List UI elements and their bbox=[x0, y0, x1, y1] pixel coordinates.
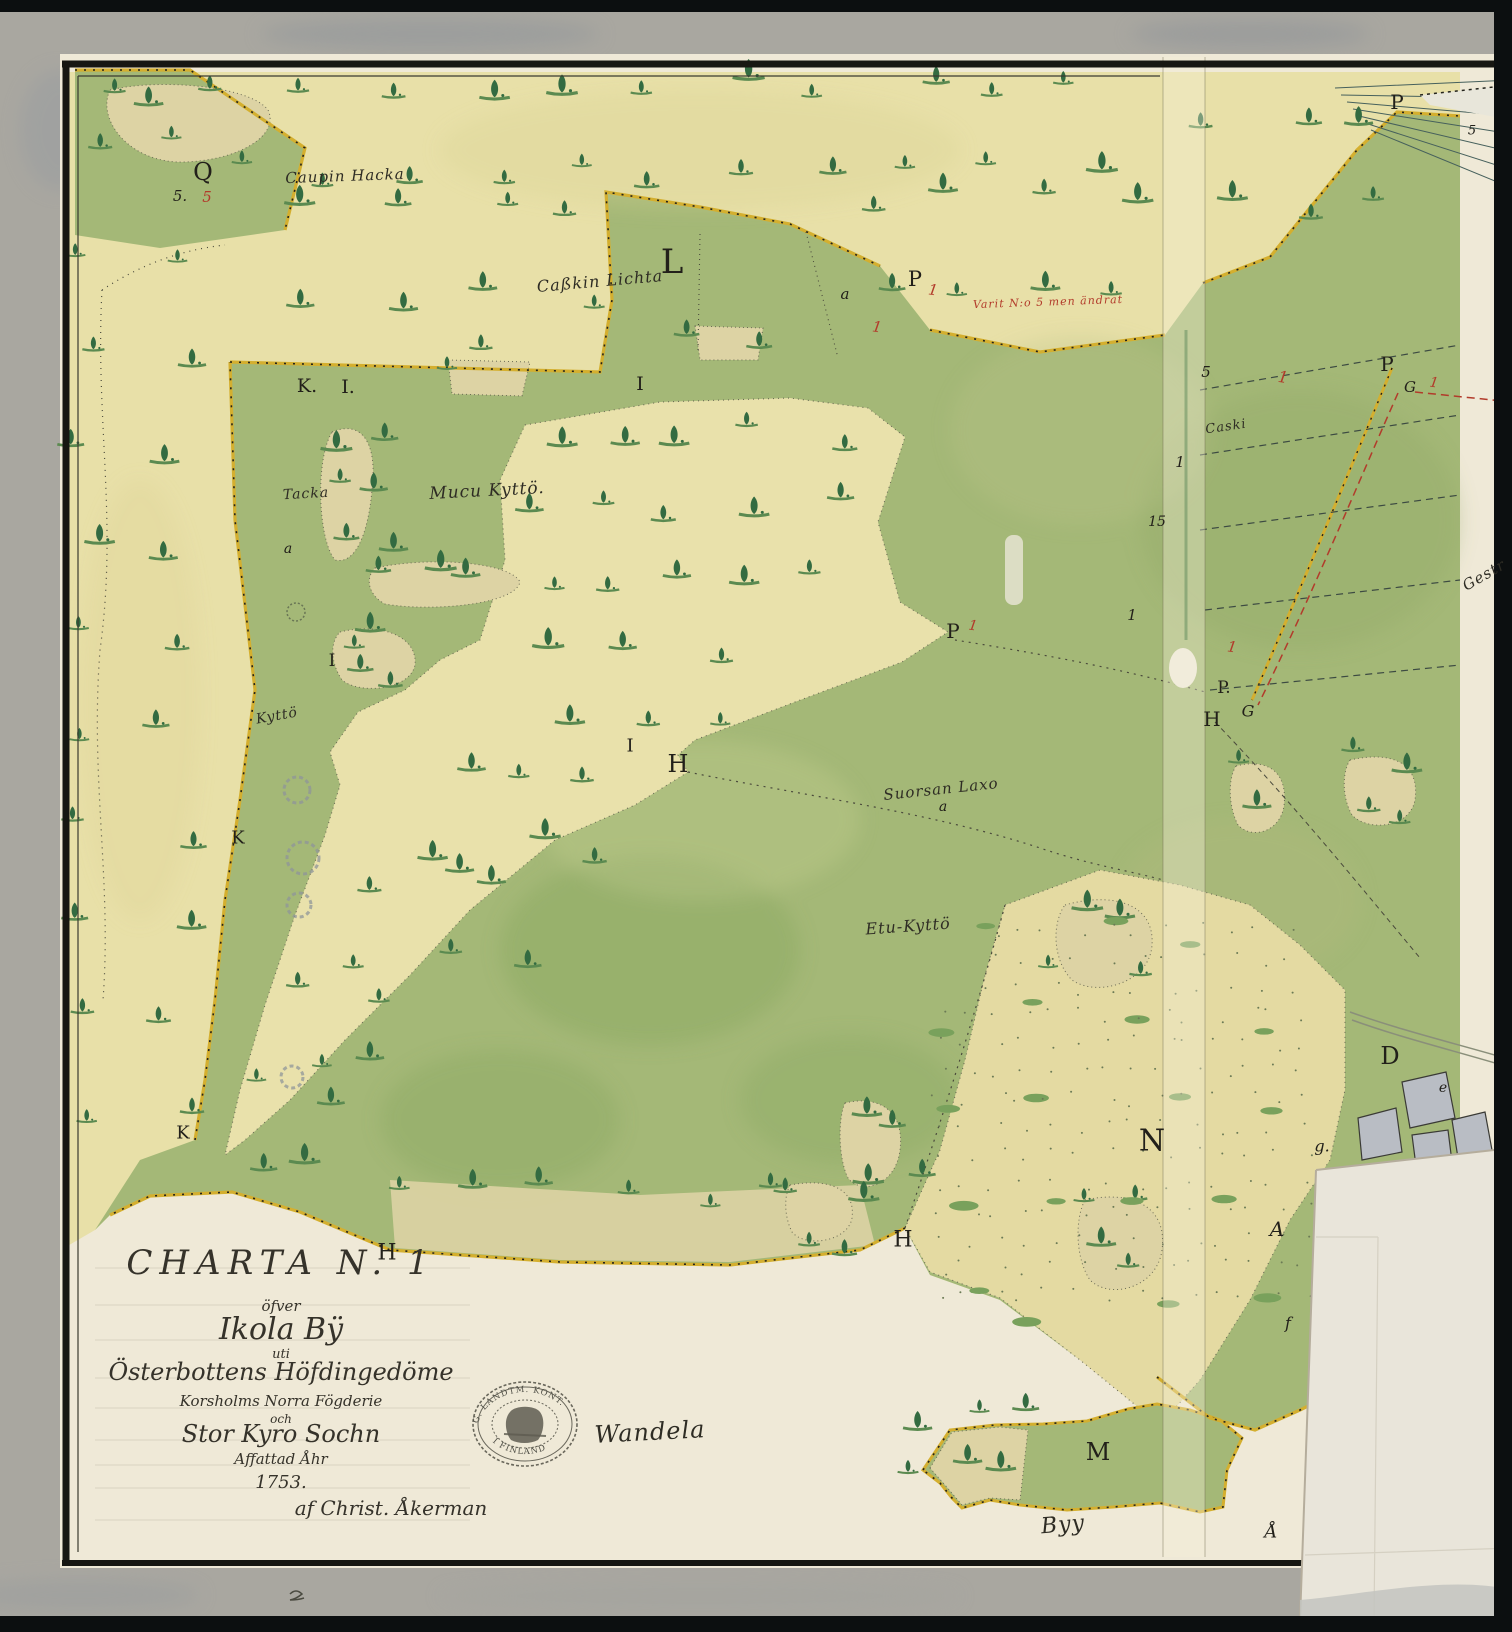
map-canvas: G. LANDTM. KONT. I FINLAND bbox=[0, 0, 1512, 1632]
damage-streak bbox=[1005, 535, 1023, 605]
paper-patch bbox=[1300, 1148, 1512, 1620]
scan-edge-top bbox=[0, 0, 1512, 12]
scan-edge-right bbox=[1494, 0, 1512, 1632]
stamp-crest bbox=[506, 1407, 543, 1443]
scan-edge-bottom bbox=[0, 1616, 1512, 1632]
fold-crease bbox=[1163, 57, 1205, 1557]
historical-map-scan: { "cartouche": { "lines": ["CHARTA N. 1"… bbox=[0, 0, 1512, 1632]
